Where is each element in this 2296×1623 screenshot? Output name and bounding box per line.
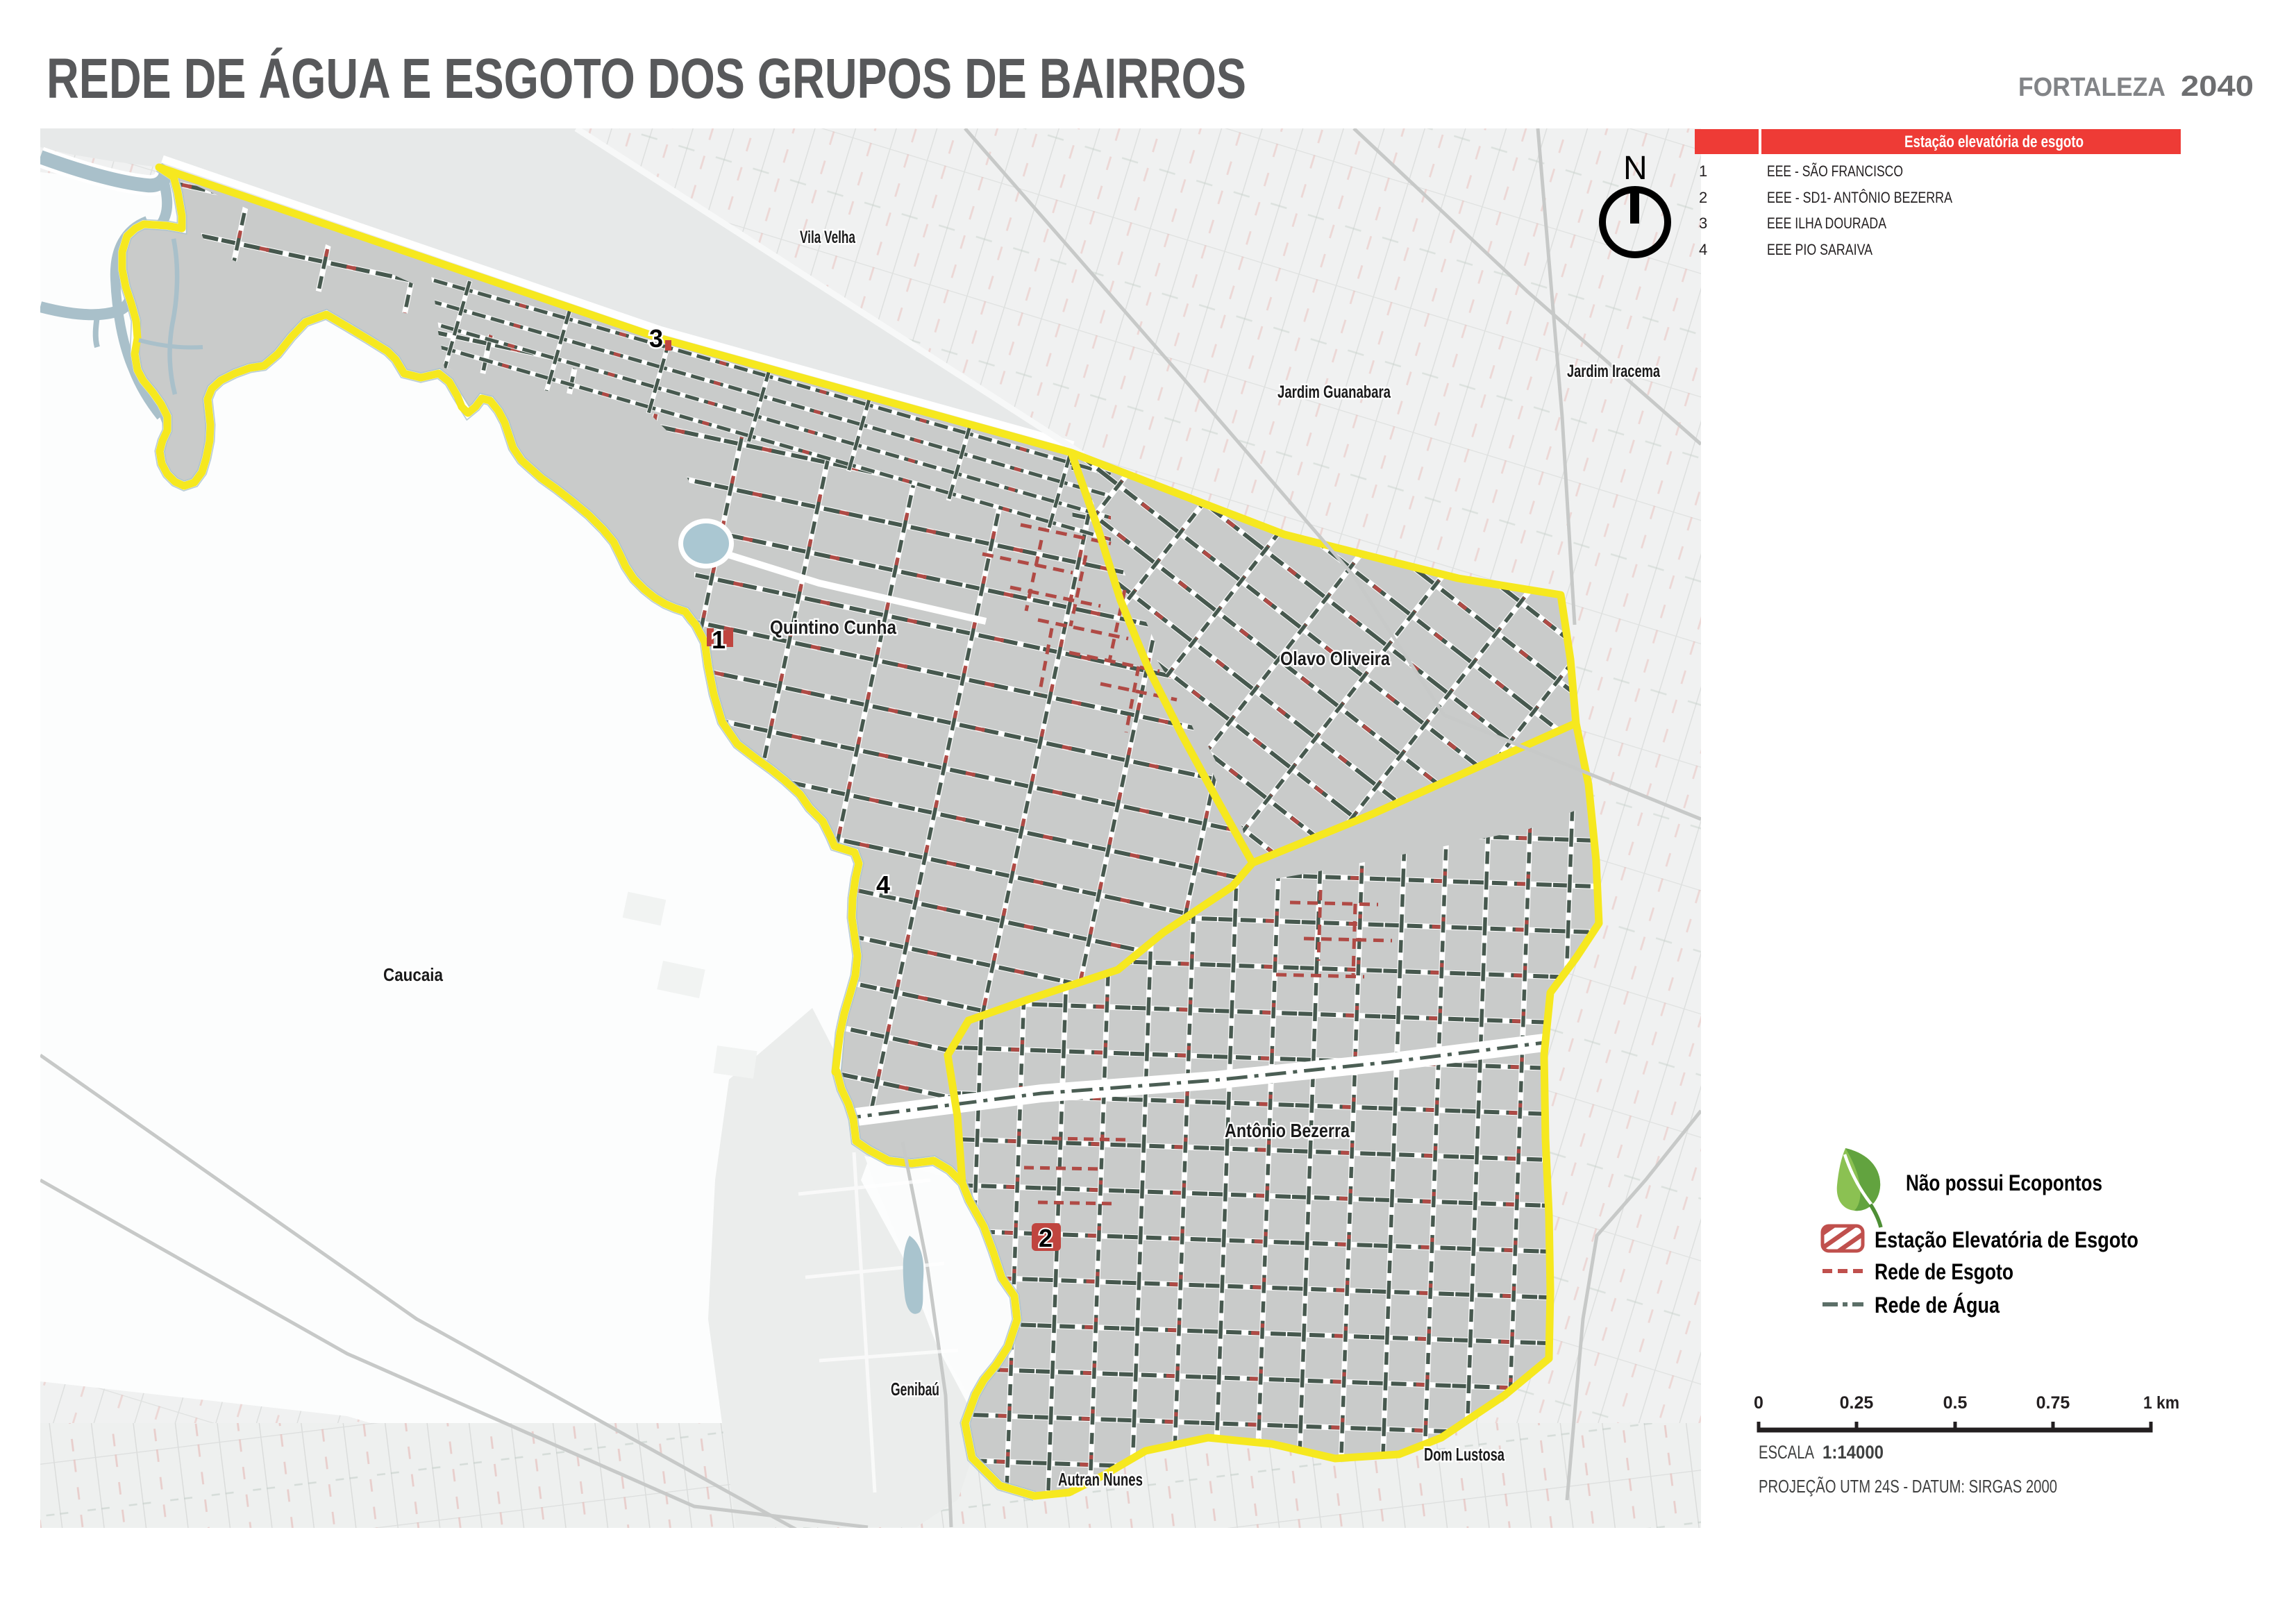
svg-text:2: 2 [1039,1224,1053,1252]
svg-text:EEE - SÃO FRANCISCO: EEE - SÃO FRANCISCO [1767,162,1903,180]
svg-text:0.25: 0.25 [1840,1393,1874,1413]
svg-text:EEE ILHA DOURADA: EEE ILHA DOURADA [1767,215,1886,232]
svg-text:Estação elevatória de esgoto: Estação elevatória de esgoto [1904,133,2084,151]
svg-text:Estação Elevatória de Esgoto: Estação Elevatória de Esgoto [1875,1227,2138,1252]
svg-text:3: 3 [1699,215,1707,232]
svg-text:REDE DE ÁGUA E ESGOTO DOS GRUP: REDE DE ÁGUA E ESGOTO DOS GRUPOS DE BAIR… [47,47,1246,110]
svg-text:0: 0 [1754,1393,1763,1413]
svg-text:4: 4 [1699,241,1707,258]
svg-text:1 km: 1 km [2143,1393,2179,1413]
svg-text:Autran Nunes: Autran Nunes [1058,1469,1143,1490]
svg-text:Rede de Esgoto: Rede de Esgoto [1875,1259,2013,1284]
svg-text:EEE PIO SARAIVA: EEE PIO SARAIVA [1767,241,1872,258]
svg-text:N: N [1623,150,1648,187]
svg-text:Antônio Bezerra: Antônio Bezerra [1225,1120,1350,1141]
svg-text:Vila Velha: Vila Velha [800,228,856,247]
svg-text:Olavo Oliveira: Olavo Oliveira [1280,648,1390,669]
svg-text:1:14000: 1:14000 [1822,1442,1884,1463]
svg-text:1: 1 [712,625,726,654]
svg-text:4: 4 [876,871,890,899]
svg-text:Jardim Iracema: Jardim Iracema [1567,362,1661,381]
svg-text:ESCALA: ESCALA [1759,1442,1814,1463]
svg-text:Dom Lustosa: Dom Lustosa [1424,1444,1505,1465]
svg-text:0.75: 0.75 [2036,1393,2070,1413]
svg-text:2: 2 [1699,189,1707,206]
svg-text:Não possui Ecopontos: Não possui Ecopontos [1906,1170,2102,1195]
svg-text:FORTALEZA: FORTALEZA [2018,73,2165,102]
svg-text:Caucaia: Caucaia [383,964,443,985]
svg-text:Jardim Guanabara: Jardim Guanabara [1277,382,1391,402]
svg-text:PROJEÇÃO UTM 24S - DATUM: SIRG: PROJEÇÃO UTM 24S - DATUM: SIRGAS 2000 [1759,1476,2057,1497]
svg-text:1: 1 [1699,162,1707,180]
svg-text:Quintino Cunha: Quintino Cunha [770,616,896,638]
svg-text:Rede de Água: Rede de Água [1875,1293,2000,1318]
svg-text:3: 3 [649,324,663,353]
svg-text:0.5: 0.5 [1943,1393,1968,1413]
svg-text:Genibaú: Genibaú [891,1379,939,1399]
svg-text:2040: 2040 [2181,69,2254,102]
svg-text:EEE - SD1- ANTÔNIO BEZERRA: EEE - SD1- ANTÔNIO BEZERRA [1767,189,1952,206]
